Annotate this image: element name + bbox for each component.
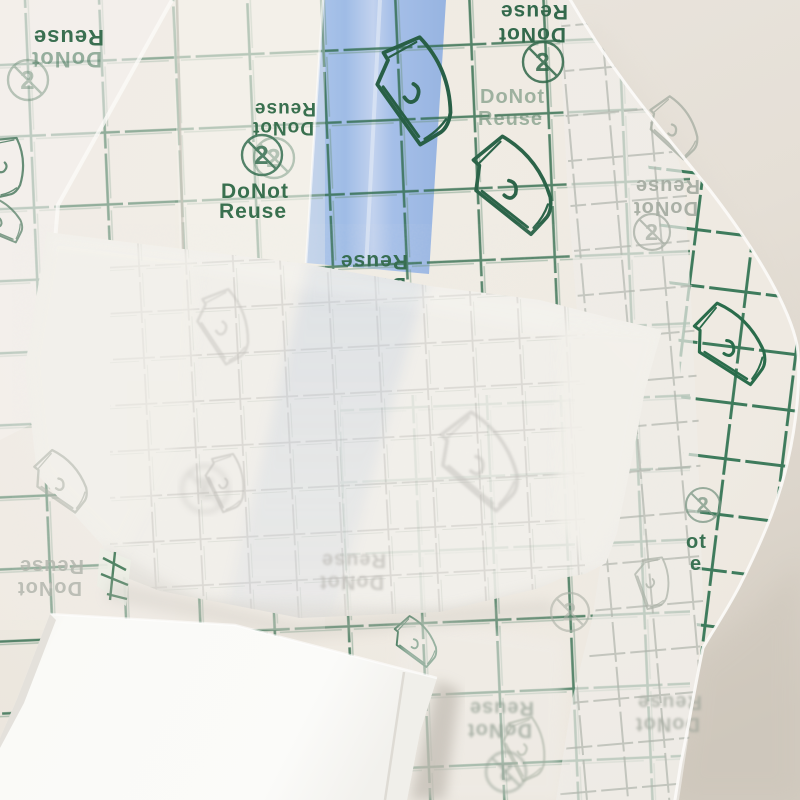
svg-text:Reuse: Reuse [478,108,543,130]
svg-text:ot: ot [686,531,707,553]
svg-text:Reuse: Reuse [469,697,534,719]
svg-text:Reuse: Reuse [340,250,408,273]
svg-text:Reuse: Reuse [219,200,287,223]
svg-text:DoNot: DoNot [17,577,82,599]
svg-text:Reuse: Reuse [33,25,104,50]
svg-text:Reuse: Reuse [19,555,84,577]
svg-text:e: e [690,553,702,575]
svg-text:Reuse: Reuse [635,175,700,197]
svg-text:DoNot: DoNot [319,571,384,593]
svg-text:Reuse: Reuse [500,0,568,23]
svg-text:Reuse: Reuse [321,549,386,571]
svg-text:DoNot: DoNot [480,86,545,108]
svg-text:Reuse: Reuse [254,98,316,119]
svg-text:DoNot: DoNot [498,23,566,46]
